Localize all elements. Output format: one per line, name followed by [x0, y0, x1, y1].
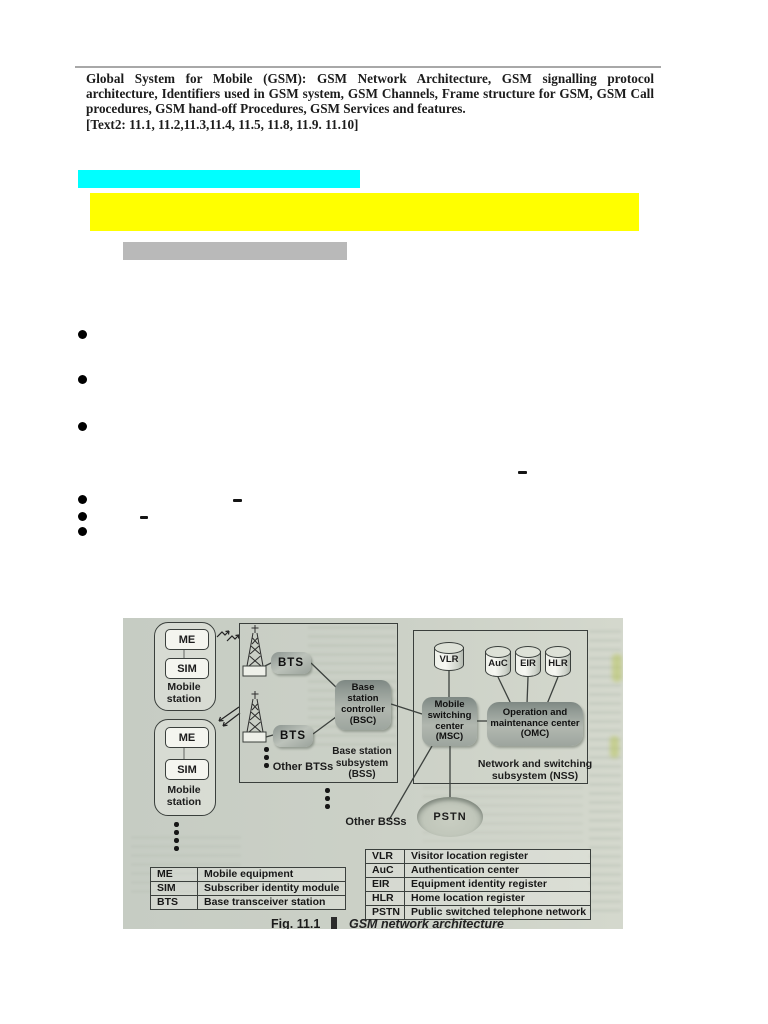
auc-label: AuC	[485, 658, 511, 669]
legend-abbr: HLR	[366, 892, 405, 906]
mobile-station-label-2: Mobile station	[156, 784, 212, 808]
bss-label: Base station subsystem (BSS)	[326, 746, 398, 781]
cylinder-top	[485, 646, 511, 658]
nss-label: Network and switching subsystem (NSS)	[465, 758, 605, 782]
legend-abbr: AuC	[366, 864, 405, 878]
msc-box: Mobile switching center (MSC)	[422, 697, 477, 746]
ellipsis-dot	[264, 755, 269, 760]
bullet-point	[78, 495, 87, 504]
vlr-label: VLR	[434, 654, 464, 665]
hlr-label: HLR	[545, 658, 571, 669]
table-row: EIR Equipment identity register	[366, 878, 591, 892]
bullet-point	[78, 330, 87, 339]
bullet-point	[78, 527, 87, 536]
gsm-architecture-figure: ME SIM Mobile station ME SIM Mobile stat…	[123, 618, 623, 929]
syllabus-reference: [Text2: 11.1, 11.2,11.3,11.4, 11.5, 11.8…	[86, 118, 654, 133]
vlr-cylinder: VLR	[434, 642, 464, 671]
bsc-box: Base station controller (BSC)	[335, 680, 391, 730]
sim-label-2: SIM	[177, 764, 197, 776]
legend-abbr: EIR	[366, 878, 405, 892]
dash-mark	[140, 516, 148, 519]
bsc-label: Base station controller (BSC)	[341, 683, 385, 726]
table-row: ME Mobile equipment	[151, 868, 346, 882]
pstn-ellipse: PSTN	[417, 797, 483, 837]
ellipsis-dot	[174, 838, 179, 843]
pstn-label: PSTN	[433, 811, 466, 823]
legend-abbr: BTS	[151, 896, 198, 910]
legend-full: Visitor location register	[405, 850, 591, 864]
legend-full: Home location register	[405, 892, 591, 906]
table-row: AuC Authentication center	[366, 864, 591, 878]
other-bsss-label: Other BSSs	[345, 816, 407, 829]
sim-label-1: SIM	[177, 663, 197, 675]
sim-box-2: SIM	[165, 759, 209, 780]
bts-box-1: BTS	[271, 652, 311, 674]
me-box-2: ME	[165, 727, 209, 748]
legend-full: Authentication center	[405, 864, 591, 878]
cylinder-top	[434, 642, 464, 654]
syllabus-paragraph: Global System for Mobile (GSM): GSM Netw…	[86, 72, 654, 117]
yellow-highlight-bar	[90, 193, 639, 231]
me-label-1: ME	[179, 634, 196, 646]
ellipsis-dot	[325, 796, 330, 801]
radio-wave-arrows-icon	[216, 628, 240, 644]
table-row: HLR Home location register	[366, 892, 591, 906]
table-row: VLR Visitor location register	[366, 850, 591, 864]
caption-separator-bar	[331, 917, 337, 929]
ellipsis-dot	[325, 788, 330, 793]
omc-label: Operation and maintenance center (OMC)	[490, 708, 579, 740]
ellipsis-dot	[264, 763, 269, 768]
bts-label-2: BTS	[280, 730, 306, 742]
legend-full: Base transceiver station	[198, 896, 346, 910]
cylinder-top	[545, 646, 571, 658]
gray-highlight-bar	[123, 242, 347, 260]
legend-table-left: ME Mobile equipment SIM Subscriber ident…	[150, 867, 346, 910]
msc-label: Mobile switching center (MSC)	[428, 700, 472, 743]
bullet-point	[78, 422, 87, 431]
hlr-cylinder: HLR	[545, 646, 571, 677]
auc-cylinder: AuC	[485, 646, 511, 677]
bullet-point	[78, 375, 87, 384]
legend-full: Subscriber identity module	[198, 882, 346, 896]
table-row: SIM Subscriber identity module	[151, 882, 346, 896]
cyan-highlight-bar	[78, 170, 360, 188]
antenna-tower-icon	[242, 690, 268, 743]
legend-abbr: SIM	[151, 882, 198, 896]
table-row: BTS Base transceiver station	[151, 896, 346, 910]
me-box-1: ME	[165, 629, 209, 650]
legend-abbr: VLR	[366, 850, 405, 864]
dash-mark	[233, 499, 242, 502]
figure-number: Fig. 11.1	[271, 917, 320, 929]
legend-full: Equipment identity register	[405, 878, 591, 892]
legend-abbr: ME	[151, 868, 198, 882]
header-divider-line	[75, 66, 661, 68]
ellipsis-dot	[264, 747, 269, 752]
eir-cylinder: EIR	[515, 646, 541, 677]
figure-title: GSM network architecture	[349, 917, 504, 929]
ellipsis-dot	[174, 846, 179, 851]
legend-table-right: VLR Visitor location register AuC Authen…	[365, 849, 591, 920]
bts-box-2: BTS	[273, 725, 313, 747]
me-label-2: ME	[179, 732, 196, 744]
legend-full: Mobile equipment	[198, 868, 346, 882]
cylinder-top	[515, 646, 541, 658]
omc-box: Operation and maintenance center (OMC)	[487, 702, 583, 746]
bts-label-1: BTS	[278, 657, 304, 669]
ellipsis-dot	[325, 804, 330, 809]
syllabus-header: Global System for Mobile (GSM): GSM Netw…	[86, 72, 654, 133]
sim-box-1: SIM	[165, 658, 209, 679]
bullet-point	[78, 512, 87, 521]
radio-wave-arrows-icon	[215, 706, 241, 728]
ellipsis-dot	[174, 822, 179, 827]
eir-label: EIR	[515, 658, 541, 669]
mobile-station-label-1: Mobile station	[156, 681, 212, 705]
dash-mark	[518, 471, 527, 474]
ellipsis-dot	[174, 830, 179, 835]
antenna-tower-icon	[242, 624, 268, 677]
